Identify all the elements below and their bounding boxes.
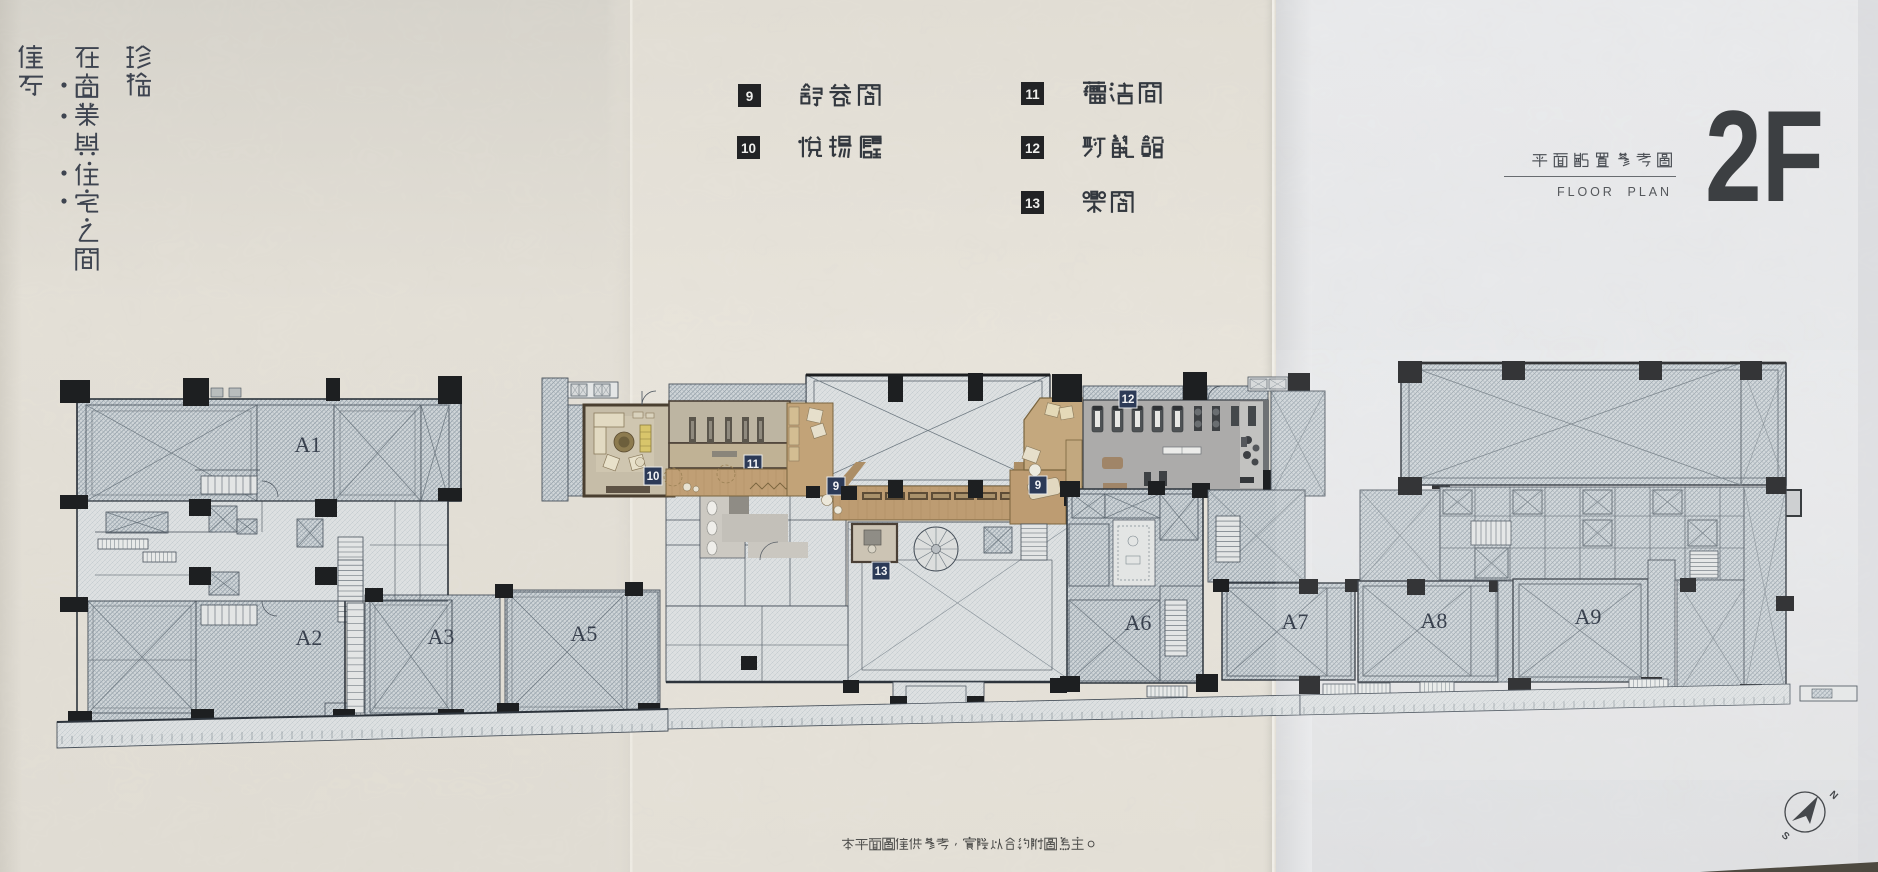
svg-text:A3: A3	[428, 624, 455, 649]
svg-text:12: 12	[1122, 394, 1135, 406]
svg-text:A8: A8	[1421, 608, 1448, 633]
svg-text:13: 13	[1025, 196, 1041, 211]
svg-text:FLOOR PLAN: FLOOR PLAN	[1557, 185, 1675, 199]
svg-text:A7: A7	[1282, 609, 1309, 634]
svg-text:9: 9	[833, 481, 839, 493]
svg-text:9: 9	[1035, 480, 1041, 492]
svg-text:A9: A9	[1575, 604, 1602, 629]
svg-text:A6: A6	[1125, 610, 1152, 635]
svg-text:12: 12	[1025, 141, 1040, 156]
svg-text:A5: A5	[571, 621, 598, 646]
svg-text:A1: A1	[295, 432, 322, 457]
svg-text:13: 13	[875, 566, 888, 578]
svg-text:11: 11	[1025, 87, 1040, 102]
svg-text:9: 9	[746, 89, 754, 104]
svg-text:2F: 2F	[1705, 83, 1824, 229]
svg-text:10: 10	[741, 141, 756, 156]
svg-text:A2: A2	[296, 625, 323, 650]
svg-text:10: 10	[647, 471, 660, 483]
